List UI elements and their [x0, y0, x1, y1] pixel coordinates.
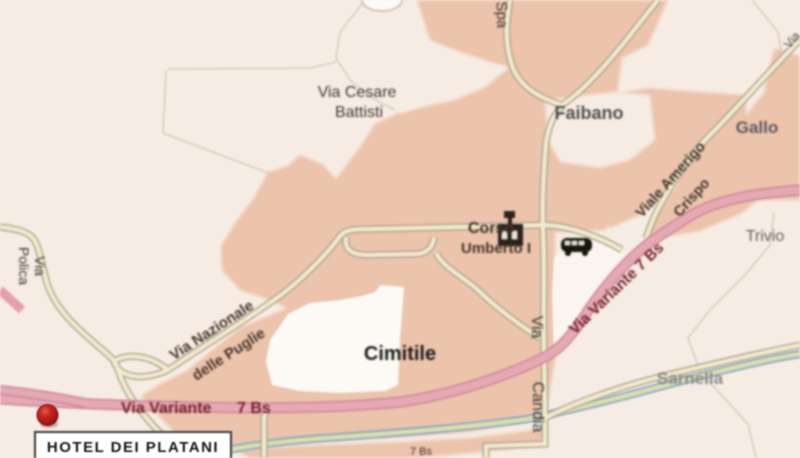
svg-text:Cimitile: Cimitile — [364, 343, 436, 365]
svg-text:Via: Via — [528, 316, 545, 339]
svg-text:7 Bs: 7 Bs — [237, 400, 271, 417]
svg-text:Via Cesare: Via Cesare — [318, 84, 397, 101]
svg-text:Via Variante: Via Variante — [121, 400, 212, 417]
svg-text:Gallo: Gallo — [736, 118, 779, 137]
svg-text:Via: Via — [32, 256, 48, 276]
svg-text:Trivio: Trivio — [746, 228, 785, 245]
svg-text:Sarnella: Sarnella — [657, 369, 724, 388]
svg-text:Battisti: Battisti — [335, 104, 383, 121]
svg-text:Polica: Polica — [16, 247, 32, 285]
svg-text:Umberto I: Umberto I — [461, 240, 531, 257]
svg-text:Spa: Spa — [493, 1, 511, 29]
svg-text:Faibano: Faibano — [554, 103, 623, 123]
svg-text:7 Bs: 7 Bs — [410, 446, 433, 458]
svg-text:HOTEL DEI PLATANI: HOTEL DEI PLATANI — [47, 439, 219, 456]
svg-text:Candia: Candia — [529, 382, 546, 433]
svg-text:Corso: Corso — [468, 220, 514, 237]
